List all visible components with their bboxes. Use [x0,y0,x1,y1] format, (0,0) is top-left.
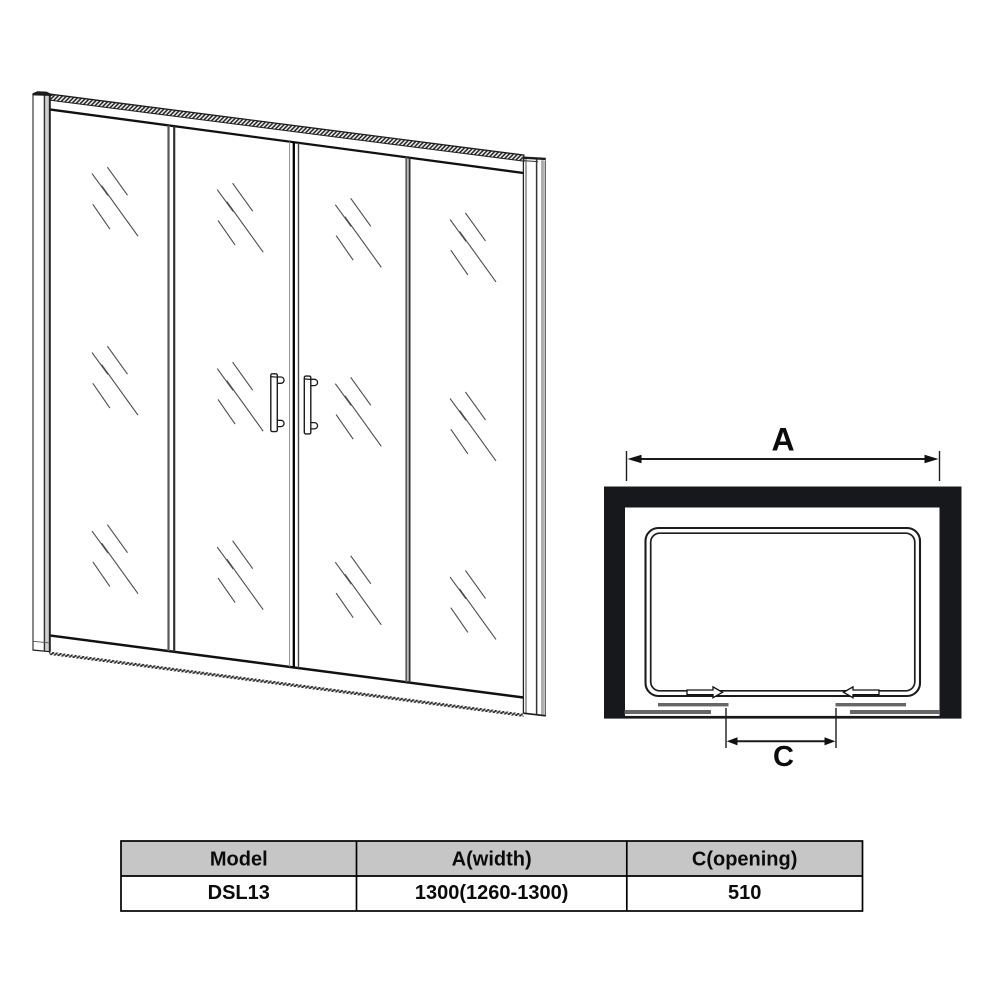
svg-text:DSL13: DSL13 [208,882,270,904]
svg-text:510: 510 [728,882,761,904]
svg-text:A: A [771,422,794,458]
svg-text:A(width): A(width) [452,849,532,871]
svg-text:C: C [773,741,794,773]
svg-text:C(opening): C(opening) [692,849,798,871]
svg-text:Model: Model [210,849,268,871]
svg-text:1300(1260-1300): 1300(1260-1300) [415,882,568,904]
